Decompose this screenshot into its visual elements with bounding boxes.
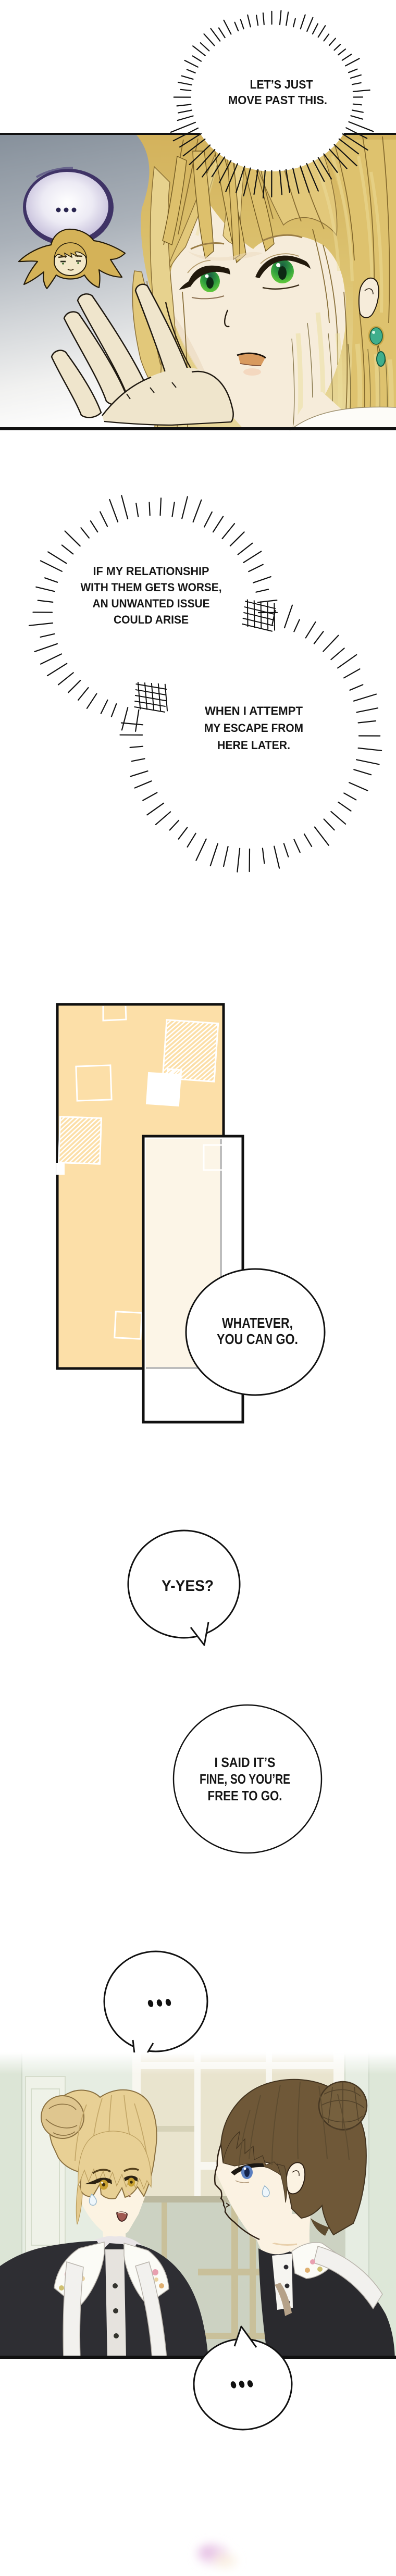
svg-text:MY ESCAPE FROM: MY ESCAPE FROM <box>204 721 303 735</box>
svg-text:I SAID IT’S: I SAID IT’S <box>215 1754 276 1770</box>
svg-text:MOVE PAST THIS.: MOVE PAST THIS. <box>228 93 327 107</box>
svg-text:YOU CAN GO.: YOU CAN GO. <box>217 1331 298 1347</box>
svg-text:COULD ARISE: COULD ARISE <box>114 613 189 626</box>
svg-text:FREE TO GO.: FREE TO GO. <box>208 1788 282 1803</box>
svg-text:AN UNWANTED ISSUE: AN UNWANTED ISSUE <box>93 597 210 610</box>
svg-text:LET’S JUST: LET’S JUST <box>250 78 313 91</box>
svg-text:Y-YES?: Y-YES? <box>162 1577 214 1595</box>
svg-text:WHATEVER,: WHATEVER, <box>222 1315 293 1331</box>
svg-text:IF MY RELATIONSHIP: IF MY RELATIONSHIP <box>93 565 209 578</box>
svg-text:FINE, SO YOU’RE: FINE, SO YOU’RE <box>200 1771 290 1787</box>
svg-text:WHEN I ATTEMPT: WHEN I ATTEMPT <box>205 704 303 717</box>
svg-text:HERE LATER.: HERE LATER. <box>217 739 290 752</box>
svg-text:WITH THEM GETS WORSE,: WITH THEM GETS WORSE, <box>81 581 222 594</box>
